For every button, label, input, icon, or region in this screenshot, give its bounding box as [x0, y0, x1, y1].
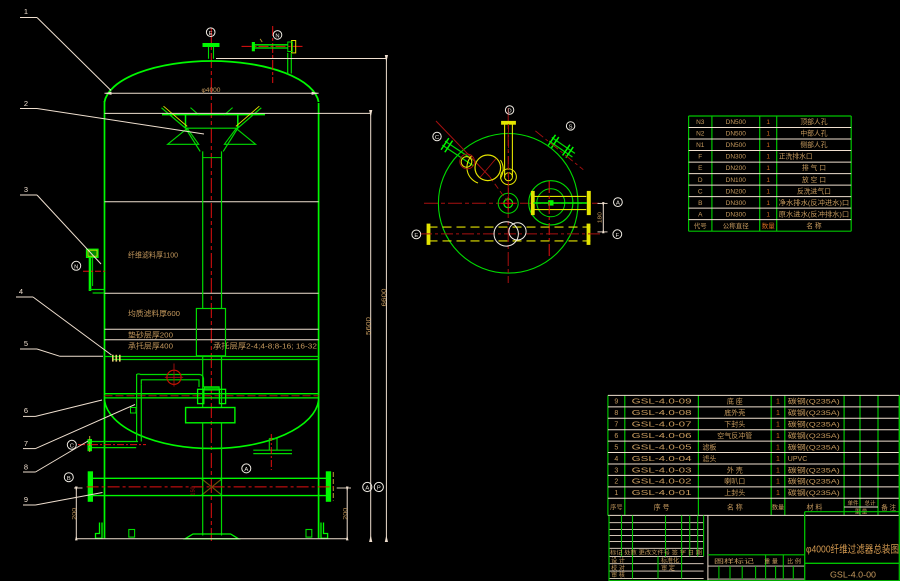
svg-text:GSL-4.0-00: GSL-4.0-00	[830, 570, 876, 580]
svg-text:均质滤料厚600: 均质滤料厚600	[128, 308, 180, 318]
svg-text:180: 180	[597, 212, 603, 223]
svg-text:6: 6	[614, 433, 618, 440]
svg-text:DN300: DN300	[726, 211, 747, 218]
svg-text:C: C	[698, 188, 703, 195]
svg-text:滤头: 滤头	[702, 454, 716, 463]
svg-text:反洗进气口: 反洗进气口	[797, 186, 831, 195]
svg-text:重 量: 重 量	[764, 558, 778, 566]
svg-text:外 壳: 外 壳	[727, 465, 743, 474]
svg-text:S: S	[569, 125, 573, 131]
svg-text:比 例: 比 例	[787, 558, 801, 566]
svg-text:侧部人孔: 侧部人孔	[800, 140, 827, 149]
svg-text:1: 1	[776, 410, 780, 417]
svg-text:GSL-4.0-02: GSL-4.0-02	[632, 477, 692, 486]
svg-text:GSL-4.0-07: GSL-4.0-07	[632, 420, 692, 429]
svg-text:中部人孔: 中部人孔	[800, 129, 827, 138]
svg-text:8: 8	[614, 410, 618, 417]
svg-text:5: 5	[614, 444, 618, 451]
svg-text:底 座: 底 座	[727, 397, 743, 406]
svg-text:序号: 序号	[610, 503, 622, 511]
svg-text:GSL-4.0-06: GSL-4.0-06	[632, 431, 692, 440]
svg-text:碳钢(Q235A): 碳钢(Q235A)	[788, 488, 840, 497]
svg-text:GSL-4.0-04: GSL-4.0-04	[632, 454, 692, 463]
svg-text:净水排水(反冲进水)口: 净水排水(反冲进水)口	[779, 198, 850, 207]
svg-text:P: P	[377, 486, 381, 492]
svg-text:序 号: 序 号	[654, 502, 670, 511]
svg-text:滤板: 滤板	[702, 442, 716, 451]
svg-text:碳钢(Q235A): 碳钢(Q235A)	[788, 465, 840, 474]
svg-text:承托层厚2-4;4-8;8-16; 16-32: 承托层厚2-4;4-8;8-16; 16-32	[213, 341, 317, 351]
svg-text:D: D	[508, 109, 512, 115]
svg-text:上封头: 上封头	[724, 488, 745, 497]
svg-text:A: A	[616, 201, 620, 207]
svg-text:碳钢(Q235A): 碳钢(Q235A)	[788, 431, 840, 440]
svg-text:图样标记: 图样标记	[714, 558, 754, 566]
svg-text:设 计: 设 计	[611, 556, 625, 564]
svg-text:E: E	[414, 233, 418, 239]
svg-text:F: F	[616, 233, 620, 239]
svg-text:纤维滤料厚1100: 纤维滤料厚1100	[128, 250, 178, 260]
svg-text:E: E	[209, 31, 213, 37]
svg-text:正洗排水口: 正洗排水口	[779, 152, 813, 161]
svg-text:数量: 数量	[762, 221, 776, 230]
svg-text:1: 1	[766, 142, 770, 149]
svg-text:4: 4	[614, 456, 618, 463]
svg-text:碳钢(Q235A): 碳钢(Q235A)	[788, 442, 840, 451]
svg-text:碳钢(Q235A): 碳钢(Q235A)	[788, 420, 840, 429]
svg-text:φ4000: φ4000	[202, 88, 222, 94]
svg-text:N2: N2	[696, 131, 705, 138]
svg-text:DN100: DN100	[726, 177, 747, 184]
svg-text:D: D	[698, 177, 703, 184]
svg-text:N3: N3	[696, 119, 705, 126]
svg-text:8: 8	[24, 463, 28, 472]
svg-text:DN300: DN300	[726, 154, 747, 161]
svg-text:代号: 代号	[694, 221, 708, 230]
svg-text:数量: 数量	[772, 503, 784, 511]
svg-text:GSL-4.0-05: GSL-4.0-05	[632, 442, 692, 451]
svg-text:1: 1	[766, 131, 770, 138]
svg-text:总计: 总计	[864, 499, 876, 507]
svg-text:1: 1	[776, 490, 780, 497]
svg-text:标准化: 标准化	[661, 556, 679, 564]
svg-text:排 气 口: 排 气 口	[802, 163, 826, 172]
svg-text:B: B	[67, 476, 71, 482]
svg-text:1: 1	[776, 444, 780, 451]
svg-text:喇叭口: 喇叭口	[724, 477, 745, 486]
svg-text:1: 1	[776, 399, 780, 406]
svg-text:DN200: DN200	[726, 165, 747, 172]
svg-text:碳钢(Q235A): 碳钢(Q235A)	[788, 397, 840, 406]
svg-text:1: 1	[766, 200, 770, 207]
svg-text:5: 5	[24, 339, 28, 348]
svg-text:UPVC: UPVC	[788, 456, 807, 463]
svg-text:材 料: 材 料	[806, 502, 822, 511]
svg-text:3: 3	[614, 467, 618, 474]
svg-text:200: 200	[72, 508, 78, 520]
svg-text:GSL-4.0-09: GSL-4.0-09	[632, 397, 692, 406]
svg-text:N: N	[74, 264, 78, 270]
svg-text:F: F	[698, 154, 702, 161]
svg-text:N: N	[275, 34, 279, 40]
svg-text:单件: 单件	[848, 499, 860, 507]
svg-text:备 注: 备 注	[881, 502, 896, 511]
svg-text:放 空 口: 放 空 口	[802, 175, 826, 184]
svg-text:标记 处数 更改文件号 签 字 日 期: 标记 处数 更改文件号 签 字 日 期	[610, 549, 702, 557]
svg-text:φ4000纤维过滤器总装图: φ4000纤维过滤器总装图	[806, 543, 899, 556]
svg-text:审 核: 审 核	[611, 571, 625, 579]
svg-text:公称直径: 公称直径	[723, 221, 750, 230]
svg-text:1: 1	[776, 433, 780, 440]
svg-text:名 称: 名 称	[806, 221, 822, 230]
svg-text:碳钢(Q235A): 碳钢(Q235A)	[788, 408, 840, 417]
svg-text:原水进水(反冲排水)口: 原水进水(反冲排水)口	[779, 209, 850, 218]
svg-text:B: B	[698, 200, 702, 207]
svg-text:A: A	[244, 467, 248, 473]
svg-text:1: 1	[766, 154, 770, 161]
svg-text:6: 6	[24, 406, 28, 415]
svg-text:C: C	[435, 135, 439, 141]
svg-text:4: 4	[19, 287, 23, 296]
svg-text:1: 1	[766, 165, 770, 172]
svg-text:1: 1	[776, 479, 780, 486]
svg-text:2: 2	[24, 99, 28, 108]
svg-text:3: 3	[24, 185, 28, 194]
svg-text:6600: 6600	[382, 288, 388, 307]
svg-text:1: 1	[776, 456, 780, 463]
svg-text:A: A	[365, 486, 369, 492]
svg-text:7: 7	[24, 439, 28, 448]
svg-text:顶部人孔: 顶部人孔	[800, 117, 827, 126]
svg-text:空气反冲管: 空气反冲管	[717, 431, 752, 440]
svg-text:1: 1	[776, 422, 780, 429]
svg-text:1: 1	[766, 177, 770, 184]
svg-text:底外壳: 底外壳	[724, 408, 745, 417]
svg-text:DN500: DN500	[726, 131, 747, 138]
svg-text:1: 1	[776, 467, 780, 474]
svg-text:1: 1	[614, 490, 618, 497]
svg-text:DN200: DN200	[726, 188, 747, 195]
svg-text:5600: 5600	[366, 316, 372, 335]
svg-text:2: 2	[614, 479, 618, 486]
svg-text:9: 9	[24, 495, 28, 504]
svg-text:200: 200	[343, 508, 349, 520]
svg-text:7: 7	[614, 422, 618, 429]
svg-text:1: 1	[24, 7, 28, 16]
svg-text:碳钢(Q235A): 碳钢(Q235A)	[788, 477, 840, 486]
svg-text:GSL-4.0-01: GSL-4.0-01	[632, 488, 692, 497]
svg-text:N1: N1	[696, 142, 705, 149]
svg-text:名 称: 名 称	[727, 502, 743, 511]
svg-text:1: 1	[766, 211, 770, 218]
svg-text:DN500: DN500	[726, 119, 747, 126]
svg-text:DN300: DN300	[726, 200, 747, 207]
svg-text:GSL-4.0-03: GSL-4.0-03	[632, 465, 692, 474]
svg-text:垫砂层厚200: 垫砂层厚200	[128, 330, 173, 340]
svg-text:1: 1	[766, 119, 770, 126]
svg-text:150: 150	[191, 486, 197, 495]
svg-text:GSL-4.0-08: GSL-4.0-08	[632, 408, 692, 417]
svg-text:1: 1	[766, 188, 770, 195]
svg-text:承托层厚400: 承托层厚400	[128, 341, 173, 351]
svg-text:E: E	[698, 165, 703, 172]
svg-text:C: C	[70, 443, 74, 449]
svg-text:下封头: 下封头	[724, 420, 745, 429]
svg-text:DN500: DN500	[726, 142, 747, 149]
svg-text:审 定: 审 定	[661, 564, 675, 572]
svg-text:校 对: 校 对	[611, 564, 625, 572]
svg-text:9: 9	[614, 399, 618, 406]
svg-text:A: A	[698, 211, 703, 218]
